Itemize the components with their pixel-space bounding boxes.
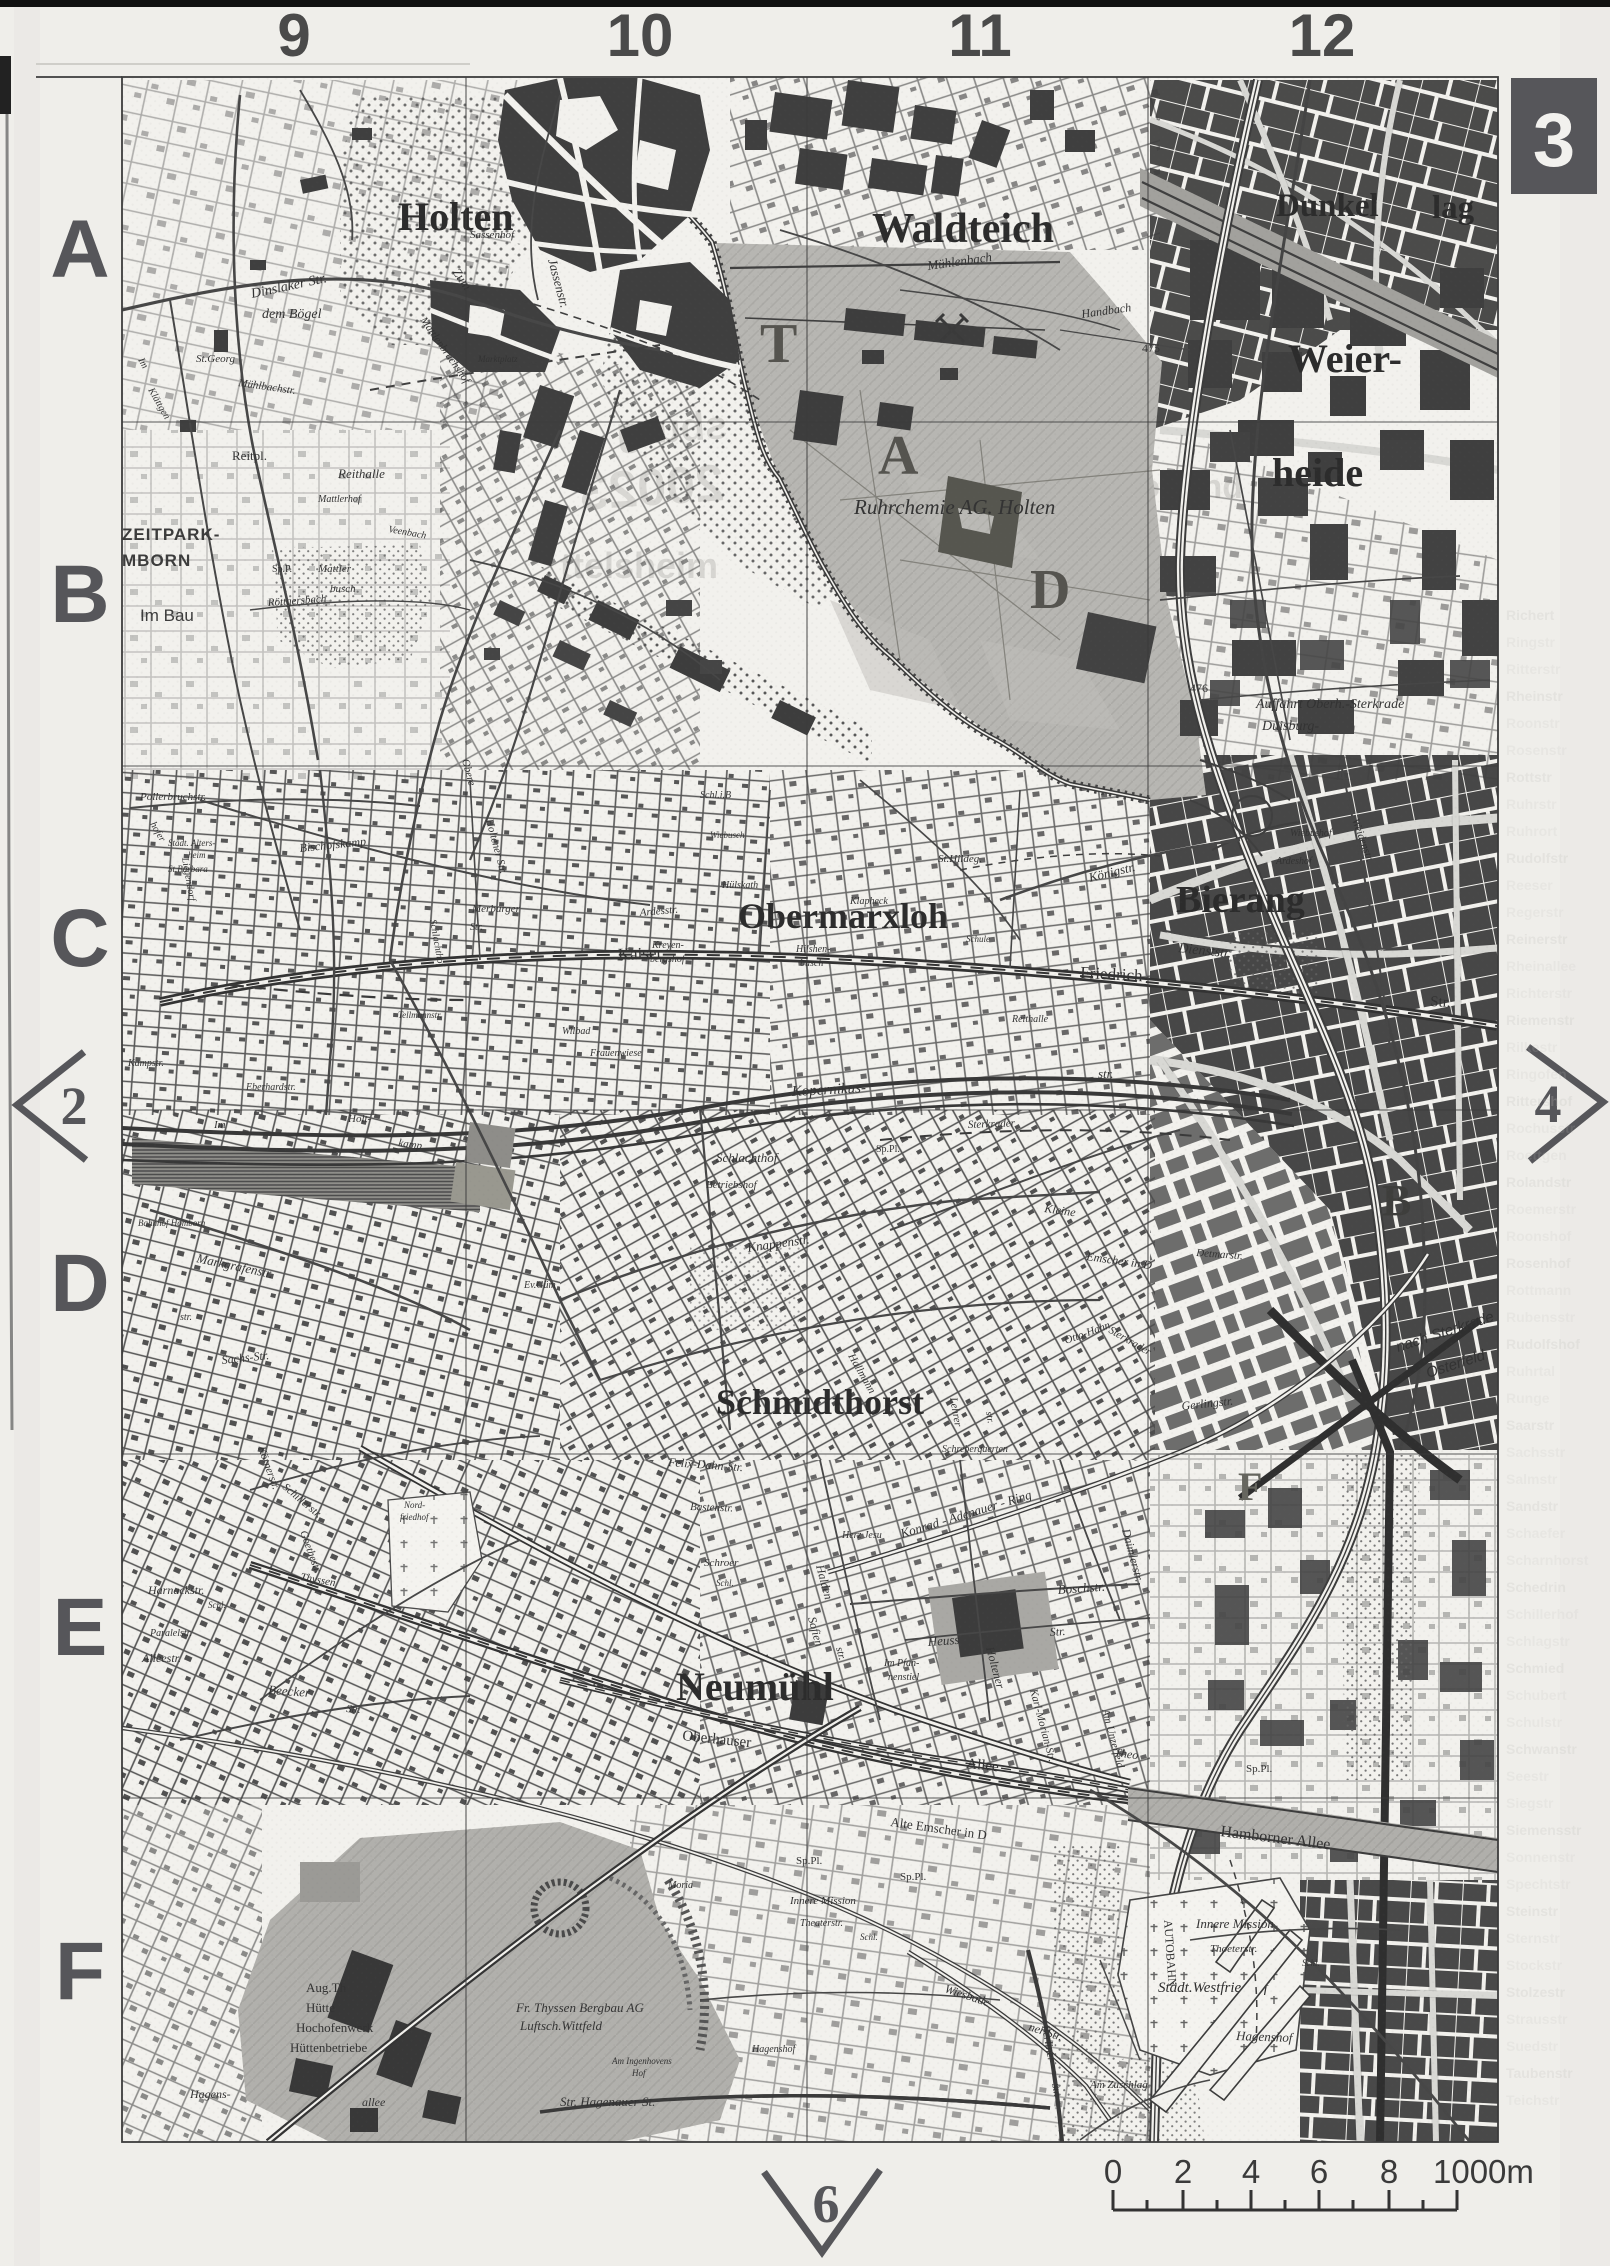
svg-text:Roemerstr: Roemerstr: [1506, 1201, 1577, 1217]
svg-text:3: 3: [1533, 98, 1575, 183]
svg-text:Scharnhorst: Scharnhorst: [1506, 1552, 1589, 1568]
svg-text:Rosenhof: Rosenhof: [1506, 1255, 1571, 1271]
svg-text:Steinstr: Steinstr: [1506, 1903, 1559, 1919]
svg-text:Teichstr: Teichstr: [1506, 2092, 1560, 2108]
svg-text:Rosenstr: Rosenstr: [1506, 742, 1567, 758]
svg-text:Rheinallee: Rheinallee: [1506, 958, 1576, 974]
svg-text:Schubert: Schubert: [1506, 1687, 1567, 1703]
svg-text:Rolandstr: Rolandstr: [1506, 1174, 1572, 1190]
svg-text:Schillerhof: Schillerhof: [1506, 1606, 1579, 1622]
svg-text:Rottmann: Rottmann: [1506, 1282, 1571, 1298]
svg-text:Stolzestr: Stolzestr: [1506, 1984, 1566, 2000]
svg-text:2: 2: [1174, 2153, 1192, 2190]
svg-text:Runge: Runge: [1506, 1390, 1550, 1406]
svg-text:Taubenstr: Taubenstr: [1506, 2065, 1573, 2081]
svg-text:4: 4: [1242, 2153, 1260, 2190]
svg-text:8: 8: [1380, 2153, 1398, 2190]
svg-text:D: D: [50, 1238, 109, 1329]
svg-text:Richert: Richert: [1506, 607, 1555, 623]
svg-text:Richterstr: Richterstr: [1506, 985, 1573, 1001]
svg-text:Ringofen: Ringofen: [1506, 1066, 1567, 1082]
svg-text:Ruhrort: Ruhrort: [1506, 823, 1558, 839]
svg-text:Schmied: Schmied: [1506, 1660, 1564, 1676]
svg-text:12: 12: [1289, 2, 1356, 69]
svg-text:Rudolfshof: Rudolfshof: [1506, 1336, 1580, 1352]
svg-text:Schaefer: Schaefer: [1506, 1525, 1566, 1541]
svg-text:Roettgen: Roettgen: [1506, 1147, 1567, 1163]
svg-text:Schedrin: Schedrin: [1506, 1579, 1566, 1595]
svg-text:Reinerstr: Reinerstr: [1506, 931, 1568, 947]
svg-text:Riemenstr: Riemenstr: [1506, 1012, 1575, 1028]
svg-text:Ruhrtal: Ruhrtal: [1506, 1363, 1555, 1379]
svg-text:Suedstr: Suedstr: [1506, 2038, 1559, 2054]
svg-text:Spechtstr: Spechtstr: [1506, 1876, 1571, 1892]
svg-text:1000m: 1000m: [1433, 2153, 1534, 2190]
svg-text:2: 2: [61, 1076, 88, 1136]
svg-text:Ringstr: Ringstr: [1506, 634, 1556, 650]
svg-text:Reeser: Reeser: [1506, 877, 1553, 893]
svg-text:Saarstr: Saarstr: [1506, 1417, 1555, 1433]
svg-text:Stockstr: Stockstr: [1506, 1957, 1563, 1973]
svg-text:Roonshof: Roonshof: [1506, 1228, 1572, 1244]
svg-text:11: 11: [948, 2, 1011, 69]
svg-text:Regerstr: Regerstr: [1506, 904, 1564, 920]
svg-text:C: C: [50, 893, 109, 984]
svg-text:Schlagstr: Schlagstr: [1506, 1633, 1570, 1649]
svg-text:Rochusstr: Rochusstr: [1506, 1120, 1576, 1136]
svg-text:Siemensstr: Siemensstr: [1506, 1822, 1582, 1838]
svg-text:Rheinstr: Rheinstr: [1506, 688, 1563, 704]
svg-text:Sternstr: Sternstr: [1506, 1930, 1560, 1946]
svg-text:Ritterstr: Ritterstr: [1506, 661, 1561, 677]
svg-text:Rittershof: Rittershof: [1506, 1093, 1572, 1109]
svg-text:Siegstr: Siegstr: [1506, 1795, 1554, 1811]
svg-text:Sachsstr: Sachsstr: [1506, 1444, 1566, 1460]
svg-text:Roonstr: Roonstr: [1506, 715, 1560, 731]
svg-text:Schwanstr: Schwanstr: [1506, 1741, 1577, 1757]
svg-text:Strausstr: Strausstr: [1506, 2011, 1568, 2027]
svg-text:A: A: [50, 204, 109, 295]
svg-text:Rubensstr: Rubensstr: [1506, 1309, 1576, 1325]
svg-text:6: 6: [813, 2174, 840, 2234]
svg-text:Sandstr: Sandstr: [1506, 1498, 1559, 1514]
svg-text:B: B: [50, 549, 109, 640]
svg-text:Salmstr: Salmstr: [1506, 1471, 1558, 1487]
svg-text:Ruhrstr: Ruhrstr: [1506, 796, 1557, 812]
svg-text:Rilkestr: Rilkestr: [1506, 1039, 1558, 1055]
svg-text:Sonnenstr: Sonnenstr: [1506, 1849, 1576, 1865]
svg-text:9: 9: [277, 2, 310, 69]
svg-text:Rottstr: Rottstr: [1506, 769, 1552, 785]
svg-text:Schulstr: Schulstr: [1506, 1714, 1563, 1730]
svg-text:Rudolfstr: Rudolfstr: [1506, 850, 1569, 866]
svg-text:0: 0: [1104, 2153, 1122, 2190]
svg-text:10: 10: [607, 2, 674, 69]
svg-text:E: E: [53, 1582, 108, 1673]
svg-text:Seestr: Seestr: [1506, 1768, 1549, 1784]
svg-text:6: 6: [1310, 2153, 1328, 2190]
svg-text:F: F: [55, 1926, 105, 2017]
